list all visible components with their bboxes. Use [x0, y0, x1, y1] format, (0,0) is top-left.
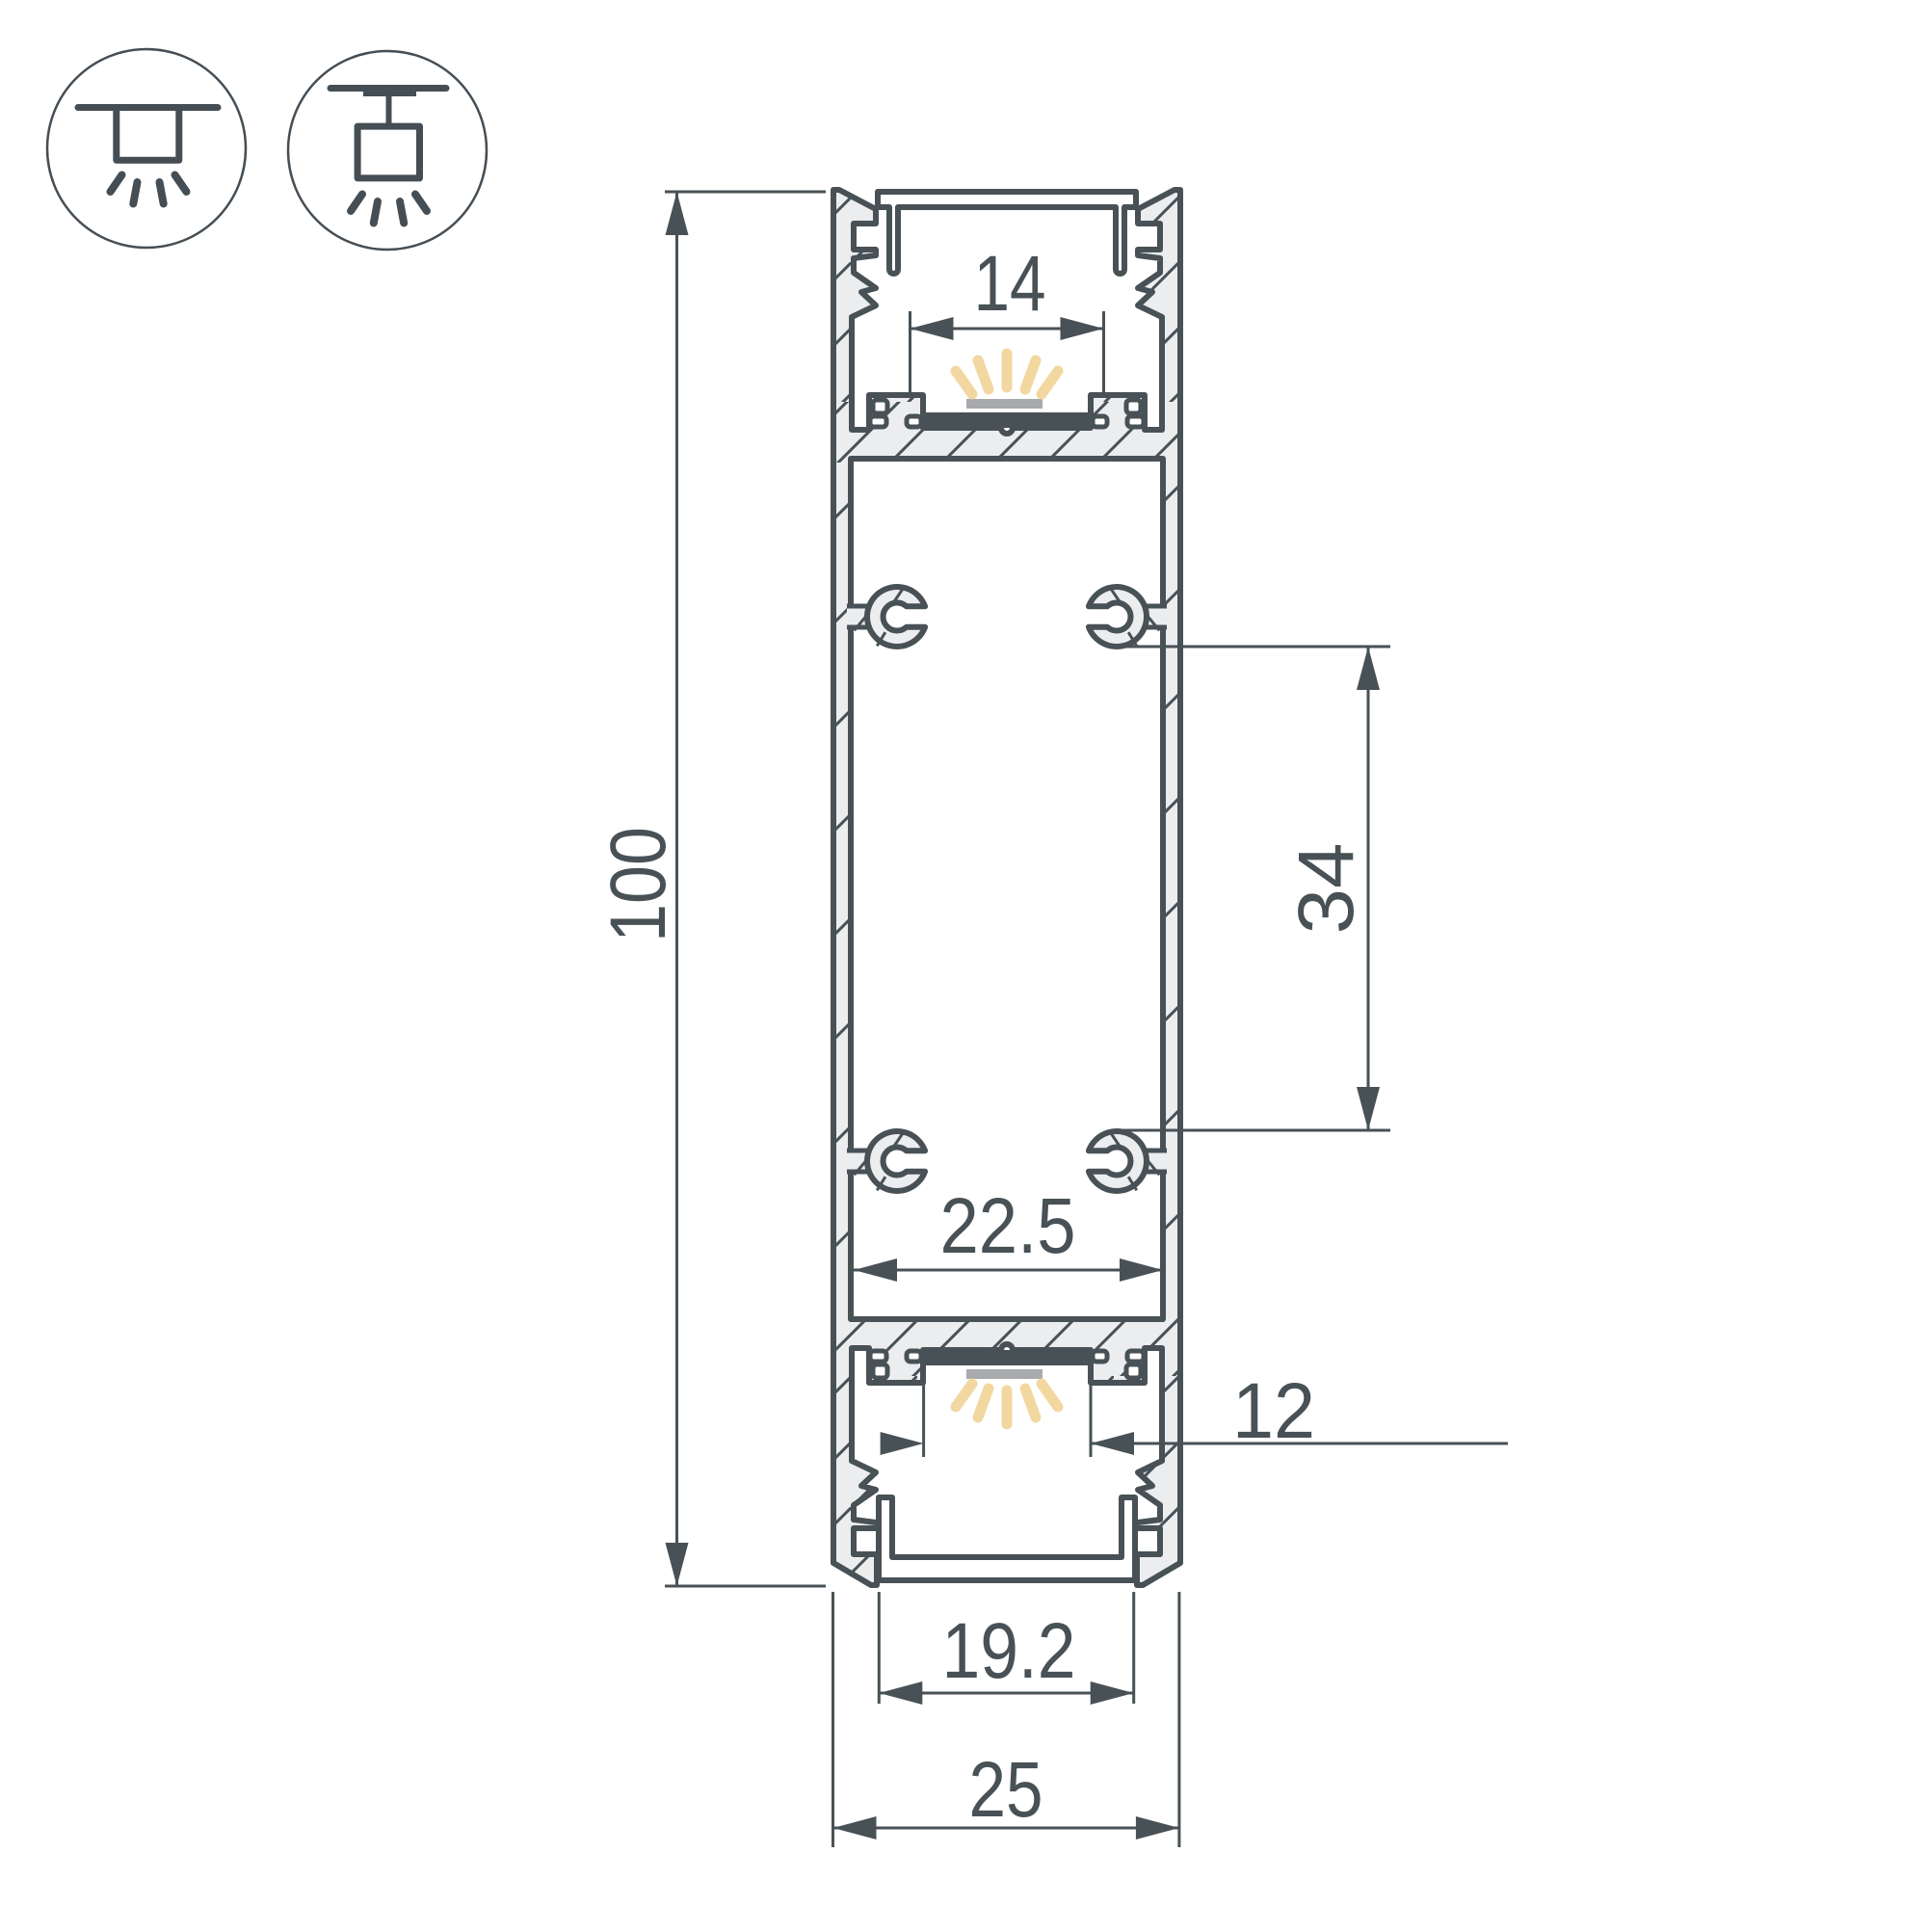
svg-text:19.2: 19.2 [942, 1607, 1076, 1695]
svg-text:34: 34 [1282, 843, 1370, 935]
svg-text:100: 100 [594, 827, 682, 942]
svg-text:14: 14 [974, 240, 1046, 328]
svg-text:25: 25 [969, 1746, 1043, 1834]
svg-text:22.5: 22.5 [940, 1182, 1076, 1270]
svg-text:12: 12 [1232, 1367, 1315, 1455]
